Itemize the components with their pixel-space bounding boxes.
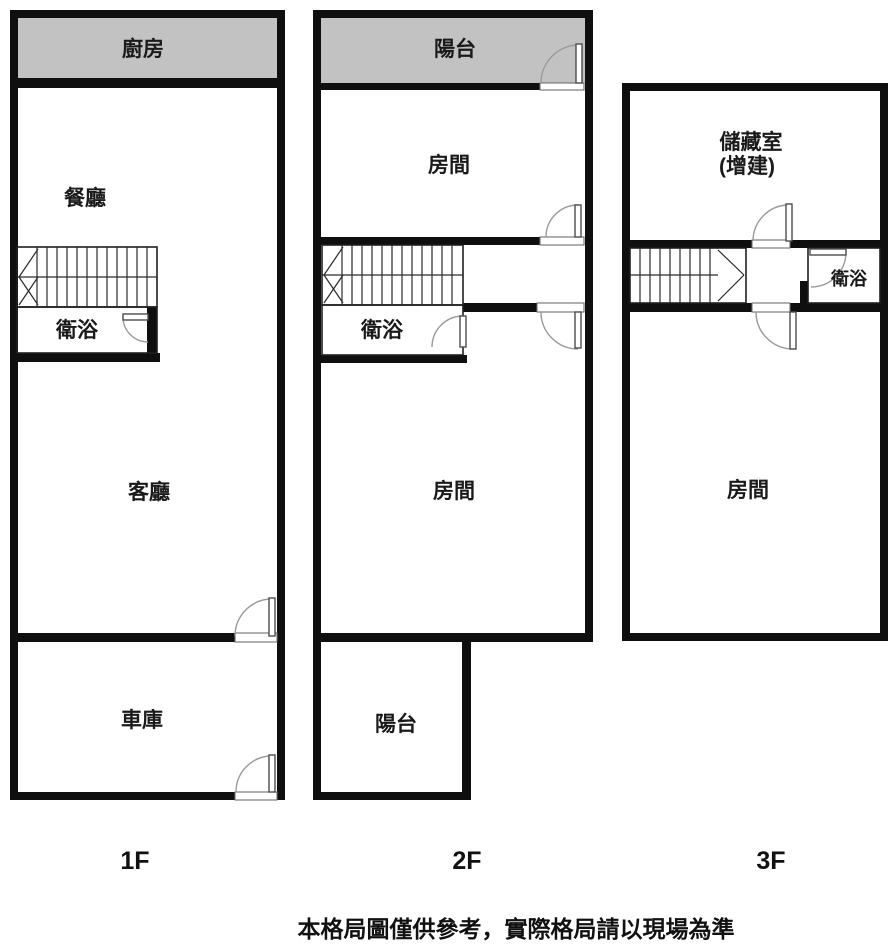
room-label-garage: 車庫 [121,708,163,732]
room-label-bathroom: 衛浴 [360,318,404,342]
floor-label-1f: 1F [120,847,149,875]
wall-segment [800,281,808,303]
door-arc [236,756,272,792]
wall-segment [10,10,18,800]
stairs-1f [17,247,157,307]
wall-segment [313,10,321,800]
floor-plan-canvas: 廚房 餐廳 衛浴 客廳 車庫 1F [0,0,889,950]
door-threshold [752,303,790,312]
room-label-bathroom: 衛浴 [55,318,99,342]
room-label-living: 客廳 [128,480,170,504]
floor-plan-3f: 儲藏室 (增建) 衛浴 房間 3F [622,83,888,875]
room-label-storage-line2: (增建) [719,154,775,178]
wall-segment [790,303,888,312]
room-label-storage-line1: 儲藏室 [720,130,783,154]
door-arc [546,205,578,237]
door-leaf [269,755,275,792]
wall-segment [10,78,285,88]
wall-segment [790,240,888,248]
room-door-3f [752,303,796,349]
wall-segment [622,633,888,641]
garage-door-1f [235,755,277,800]
wall-segment [622,83,888,91]
wall-segment [313,792,471,800]
wall-segment [463,303,537,312]
door-arc [753,205,789,241]
wall-segment [622,83,630,641]
wall-segment [313,633,593,642]
stair-arrow [324,247,343,275]
door-arc [123,317,148,342]
stair-arrow [718,250,744,275]
floor-plan-1f: 廚房 餐廳 衛浴 客廳 車庫 1F [10,10,285,875]
wall-segment [10,10,285,18]
door-leaf [460,316,466,347]
room-label-kitchen: 廚房 [122,37,164,61]
wall-segment [880,83,888,641]
room-label-dining: 餐廳 [64,186,106,210]
room-label-room-lower: 房間 [433,479,475,503]
door-arc [541,312,578,349]
door-leaf [576,44,582,83]
door-threshold [235,792,277,800]
wall-segment [313,10,593,18]
door-threshold [537,303,584,312]
living-room-door-1f [235,598,277,642]
door-leaf [575,205,581,237]
wall-segment [10,792,235,800]
walls-1f [10,10,285,800]
wall-segment [313,237,540,245]
room-label-room-upper: 房間 [428,153,470,177]
door-arc [756,312,793,349]
door-arc [432,316,463,347]
floor-plan-svg: 廚房 餐廳 衛浴 客廳 車庫 1F [0,0,889,950]
door-threshold [752,240,790,248]
door-leaf [790,312,796,349]
upper-room-door-2f [540,205,584,245]
wall-segment [277,10,285,800]
wall-segment [622,303,752,312]
floor-label-3f: 3F [756,847,785,875]
stairs-2f [322,245,463,305]
door-leaf [575,312,581,348]
room-label-balcony-top: 陽台 [434,37,476,61]
wall-segment [313,83,540,90]
floor-plan-2f: 陽台 房間 衛浴 房間 陽台 2F [313,10,593,875]
door-leaf [123,314,148,320]
wall-segment [462,642,471,800]
door-leaf [269,598,275,636]
door-threshold [540,83,584,90]
room-label-balcony-bottom: 陽台 [375,712,417,736]
disclaimer-text: 本格局圖僅供參考，實際格局請以現場為準 [298,916,735,942]
door-leaf [810,249,846,255]
wall-segment [10,633,235,642]
stair-arrow [718,275,744,301]
floor-label-2f: 2F [452,847,481,875]
wall-segment [622,240,752,248]
door-threshold [540,237,584,245]
stairs-3f [630,248,746,303]
wall-segment [313,355,467,363]
stair-arrow [19,249,38,277]
wall-segment [585,10,593,642]
room-label-bathroom: 衛浴 [830,268,868,289]
walls-2f [313,10,593,800]
door-leaf [786,204,792,241]
room-label-room: 房間 [727,478,769,502]
storage-door-3f [752,204,792,248]
lower-room-door-2f [537,303,584,349]
wall-segment [10,353,160,362]
door-arc [235,599,272,636]
